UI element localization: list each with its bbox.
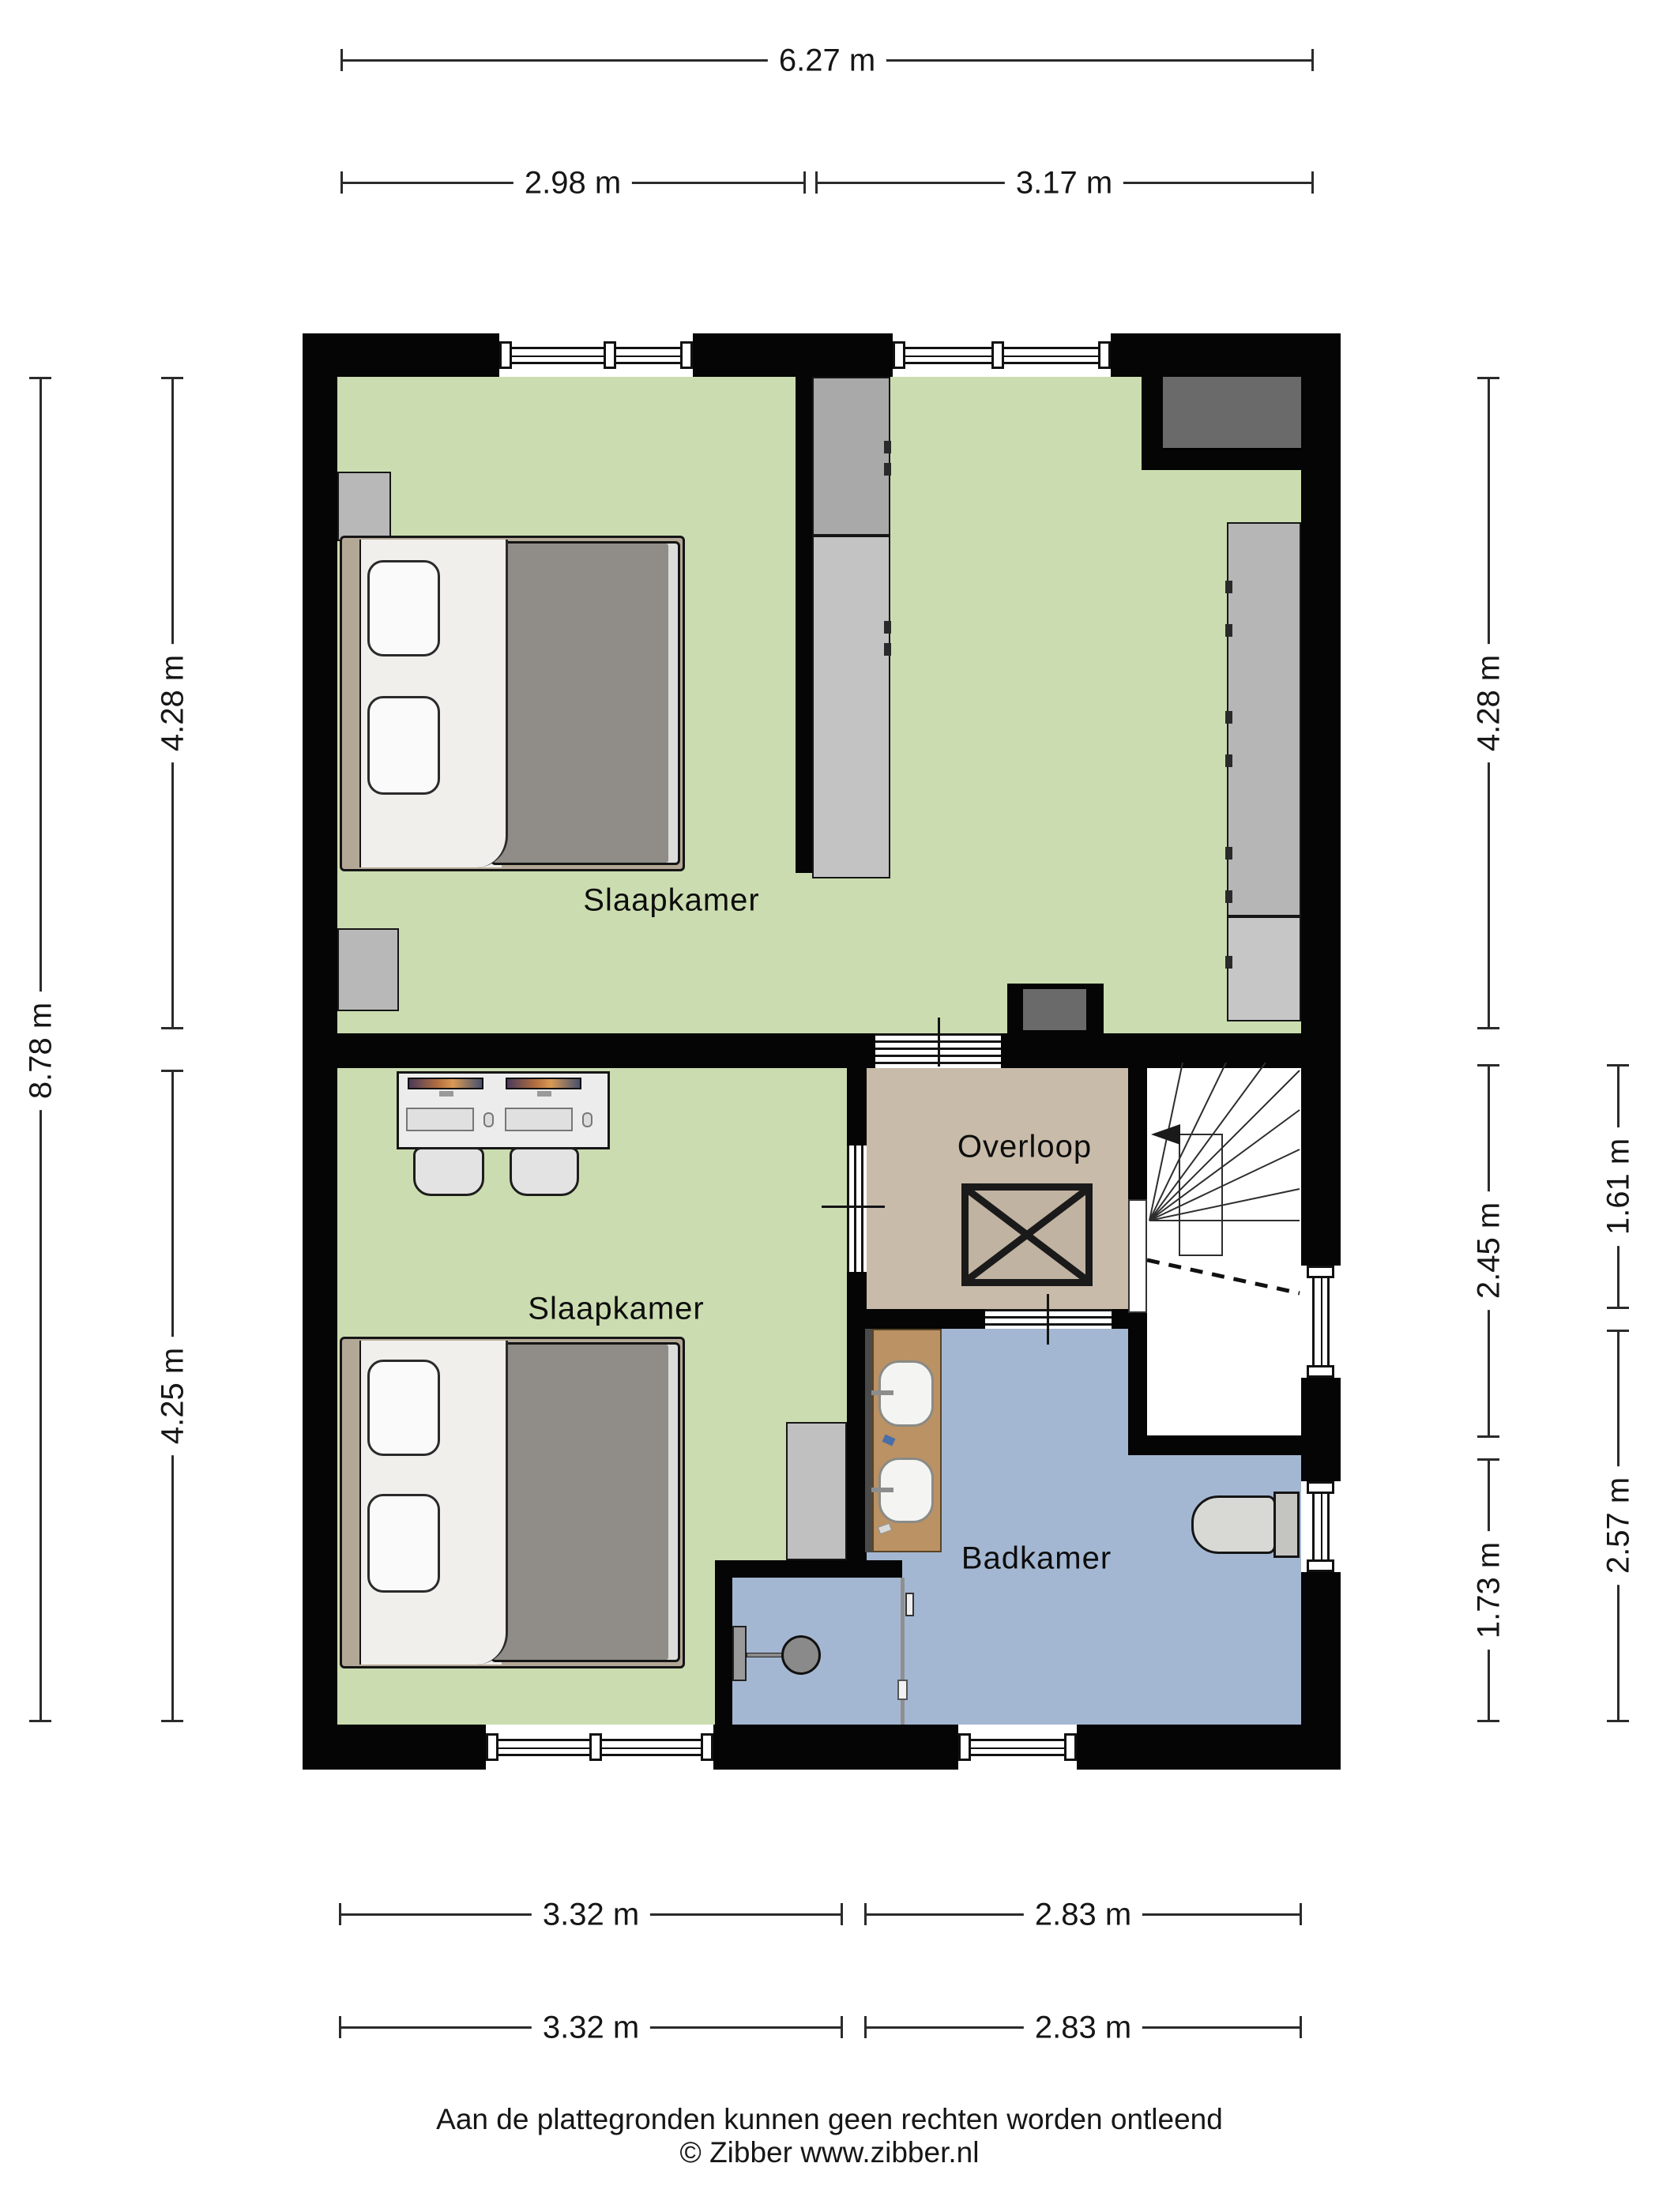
- dim-tick: [841, 1903, 843, 1925]
- wardrobe-handle: [1225, 624, 1232, 637]
- wall-right-segment-1: [1301, 470, 1341, 1266]
- toilet-tank: [1273, 1492, 1300, 1558]
- bed-pillow: [367, 560, 440, 656]
- wall-top-segment-2: [693, 333, 893, 377]
- window-top-left: [499, 333, 693, 377]
- dim-tick: [815, 171, 818, 194]
- footer-disclaimer: Aan de plattegronden kunnen geen rechten…: [436, 2103, 1223, 2136]
- dim-tick: [1477, 1458, 1499, 1461]
- window-glass: [1312, 1481, 1330, 1572]
- window-cap: [1064, 1733, 1077, 1761]
- dim-label-left-lower: 4.25 m: [156, 1337, 191, 1455]
- faucet-icon: [871, 1488, 893, 1492]
- room-label-bedroom-top: Slaapkamer: [583, 883, 759, 919]
- dim-label-right-lower: 1.73 m: [1472, 1531, 1507, 1650]
- dim-label-right-middle: 2.45 m: [1472, 1191, 1507, 1310]
- window-cap: [486, 1733, 498, 1761]
- dim-tick: [1477, 377, 1499, 379]
- window-cap: [1307, 1559, 1334, 1572]
- window-right-stairwell: [1301, 1266, 1341, 1378]
- cabinet-divider-lower: [812, 536, 890, 878]
- window-top-right: [893, 333, 1111, 377]
- dim-label-bottom2-left: 3.32 m: [532, 2011, 650, 2046]
- cabinet-left-upper: [337, 472, 391, 541]
- room-label-bedroom-bottom: Slaapkamer: [528, 1292, 704, 1327]
- bed-bottom-bedroom: [340, 1337, 685, 1668]
- dim-tick: [841, 2016, 843, 2038]
- wall-landing-right: [1128, 1052, 1147, 1199]
- bed-duvet-fold: [461, 1341, 508, 1665]
- window-bottom-bedroom: [486, 1725, 713, 1770]
- window-cap: [958, 1733, 971, 1761]
- bed-pillow: [367, 1494, 440, 1593]
- room-label-bathroom: Badkamer: [961, 1541, 1112, 1577]
- wardrobe-handle: [1225, 581, 1232, 593]
- wardrobe-handle: [1225, 956, 1232, 969]
- window-bottom-bathroom: [958, 1725, 1077, 1770]
- shower-door-handle: [905, 1593, 914, 1616]
- bed-duvet-fold: [461, 540, 508, 867]
- door-bedroom-bottom-landing: [847, 1145, 867, 1272]
- shower-glass-hinge: [897, 1680, 908, 1700]
- wall-right-segment-3: [1301, 1572, 1341, 1770]
- wall-bottom-segment-1: [303, 1725, 486, 1770]
- dim-tick: [161, 1070, 183, 1072]
- wardrobe-right-upper: [1227, 522, 1301, 916]
- dim-tick: [1477, 1435, 1499, 1438]
- window-cap: [680, 341, 693, 369]
- bed-blanket: [491, 541, 680, 865]
- window-glass: [958, 1739, 1077, 1756]
- wall-top-segment-3: [1111, 333, 1341, 377]
- monitor-icon: [506, 1078, 581, 1089]
- window-cap: [499, 341, 512, 369]
- wall-bottom-segment-2: [713, 1725, 958, 1770]
- cabinet-handle: [884, 463, 891, 476]
- cabinet-handle: [884, 621, 891, 634]
- window-cap: [589, 1733, 602, 1761]
- desk-chair: [510, 1147, 579, 1196]
- dim-label-left-upper: 4.28 m: [156, 644, 191, 762]
- dormer-box: [1163, 377, 1301, 450]
- dim-tick: [864, 2016, 867, 2038]
- room-label-landing: Overloop: [957, 1130, 1092, 1165]
- door-leaf-top: [938, 1018, 940, 1066]
- dim-tick: [803, 171, 806, 194]
- window-cap: [604, 341, 616, 369]
- bed-pillow: [367, 1360, 440, 1456]
- landing-void-symbol: [961, 1183, 1093, 1286]
- wall-divider-top-bedroom: [796, 377, 812, 873]
- window-cap: [701, 1733, 713, 1761]
- dim-tick: [161, 1027, 183, 1029]
- wall-right-segment-2: [1301, 1378, 1341, 1481]
- wall-stairvoid-bottom: [1128, 1435, 1301, 1455]
- cabinet-left-lower: [337, 928, 399, 1011]
- dim-label-right-upper: 4.28 m: [1472, 644, 1507, 762]
- chimney-box: [1023, 989, 1086, 1030]
- floorplan-page: Slaapkamer Slaapkamer Overloop Badkamer …: [0, 0, 1659, 2212]
- cabinet-divider-upper: [812, 377, 890, 536]
- dim-tick: [1607, 1330, 1629, 1332]
- wardrobe-handle: [1225, 890, 1232, 903]
- window-cap: [1307, 1481, 1334, 1494]
- bed-pillow: [367, 696, 440, 795]
- bed-top-bedroom: [340, 536, 685, 871]
- bed-blanket: [491, 1342, 680, 1662]
- dim-tick: [1477, 1064, 1499, 1066]
- dim-label-right-outer-lower: 2.57 m: [1601, 1466, 1637, 1585]
- shower-head-icon: [781, 1635, 821, 1675]
- keyboard-icon: [406, 1108, 474, 1131]
- dim-tick: [1477, 1720, 1499, 1722]
- window-glass: [1312, 1266, 1330, 1378]
- dim-label-top-total: 6.27 m: [768, 43, 886, 79]
- shower-arm: [747, 1653, 784, 1657]
- dim-tick: [1311, 171, 1314, 194]
- staircase: [1147, 1063, 1301, 1329]
- window-cap: [1307, 1266, 1334, 1278]
- faucet-icon: [871, 1390, 893, 1395]
- footer-copyright: © Zibber www.zibber.nl: [680, 2136, 980, 2169]
- dim-tick: [864, 1903, 867, 1925]
- dim-label-top-right: 3.17 m: [1005, 166, 1123, 201]
- window-cap: [1307, 1365, 1334, 1378]
- dim-tick: [1311, 49, 1314, 71]
- dim-tick: [340, 171, 343, 194]
- window-cap: [991, 341, 1004, 369]
- dim-tick: [1300, 1903, 1302, 1925]
- dim-tick: [1607, 1720, 1629, 1722]
- dim-label-bottom1-left: 3.32 m: [532, 1898, 650, 1933]
- dim-tick: [340, 49, 343, 71]
- toilet-bowl: [1191, 1495, 1276, 1554]
- window-cap: [1098, 341, 1111, 369]
- dim-label-left-total: 8.78 m: [24, 991, 59, 1110]
- window-right-toilet: [1301, 1481, 1341, 1572]
- dim-tick: [1607, 1307, 1629, 1309]
- dim-tick: [1607, 1064, 1629, 1066]
- dim-tick: [161, 377, 183, 379]
- wardrobe-handle: [1225, 847, 1232, 860]
- dim-tick: [339, 1903, 341, 1925]
- dim-label-right-outer-upper: 1.61 m: [1601, 1127, 1637, 1246]
- wall-shower-top: [715, 1560, 902, 1578]
- monitor-icon: [408, 1078, 483, 1089]
- wardrobe-right-lower: [1227, 916, 1301, 1021]
- cabinet-handle: [884, 643, 891, 656]
- mouse-icon: [483, 1112, 494, 1127]
- dim-label-bottom1-right: 2.83 m: [1024, 1898, 1142, 1933]
- wardrobe-handle: [1225, 711, 1232, 724]
- mouse-icon: [582, 1112, 592, 1127]
- door-leaf-left: [822, 1206, 885, 1208]
- wall-shower-left: [715, 1560, 732, 1725]
- dim-tick: [1477, 1027, 1499, 1029]
- shower-glass-panel: [901, 1578, 905, 1725]
- wardrobe-handle: [1225, 754, 1232, 767]
- desk-chair: [413, 1147, 484, 1196]
- window-cap: [893, 341, 905, 369]
- dim-tick: [29, 1720, 51, 1722]
- door-leaf-stairs: [1128, 1199, 1147, 1313]
- monitor-stand: [537, 1091, 551, 1097]
- wall-stairvoid-left: [1128, 1309, 1147, 1455]
- dim-tick: [161, 1720, 183, 1722]
- keyboard-icon: [505, 1108, 573, 1131]
- dim-tick: [29, 377, 51, 379]
- dim-label-bottom2-right: 2.83 m: [1024, 2011, 1142, 2046]
- cabinet-handle: [884, 441, 891, 453]
- monitor-stand: [439, 1091, 453, 1097]
- shower-valve: [732, 1626, 747, 1681]
- dim-tick: [339, 2016, 341, 2038]
- window-glass: [499, 347, 693, 364]
- dresser-corner: [786, 1422, 847, 1560]
- vanity-backsplash: [865, 1329, 872, 1552]
- door-leaf-bathroom: [1047, 1294, 1049, 1345]
- dim-tick: [1300, 2016, 1302, 2038]
- dim-label-top-left: 2.98 m: [513, 166, 632, 201]
